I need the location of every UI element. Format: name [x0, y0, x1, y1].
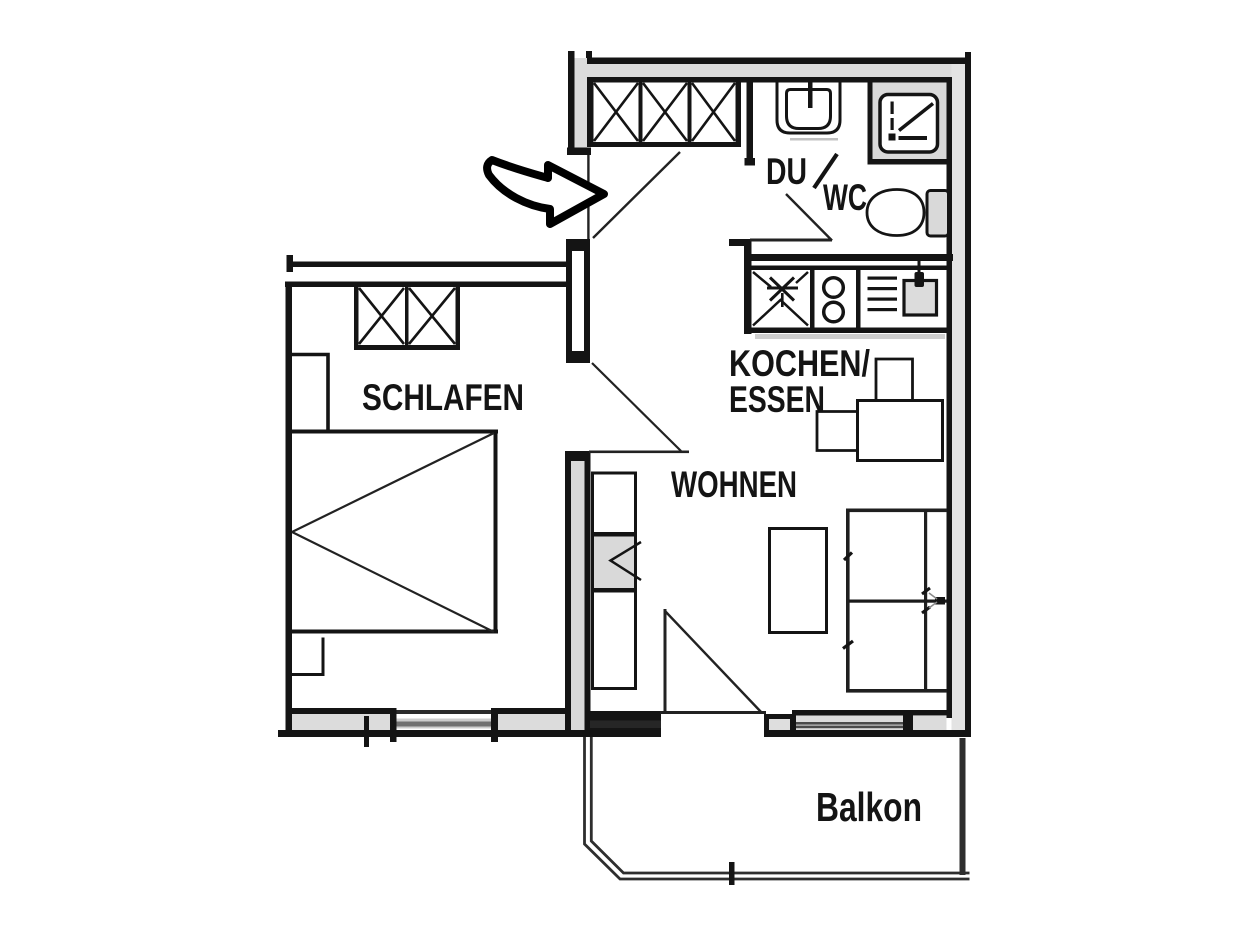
svg-text:WC: WC	[823, 177, 867, 218]
svg-text:WOHNEN: WOHNEN	[671, 464, 797, 505]
svg-text:DU: DU	[766, 151, 807, 192]
svg-text:SCHLAFEN: SCHLAFEN	[362, 377, 524, 418]
svg-text:KOCHEN/: KOCHEN/	[729, 343, 870, 384]
svg-text:Balkon: Balkon	[816, 784, 922, 830]
svg-text:ESSEN: ESSEN	[729, 379, 825, 420]
